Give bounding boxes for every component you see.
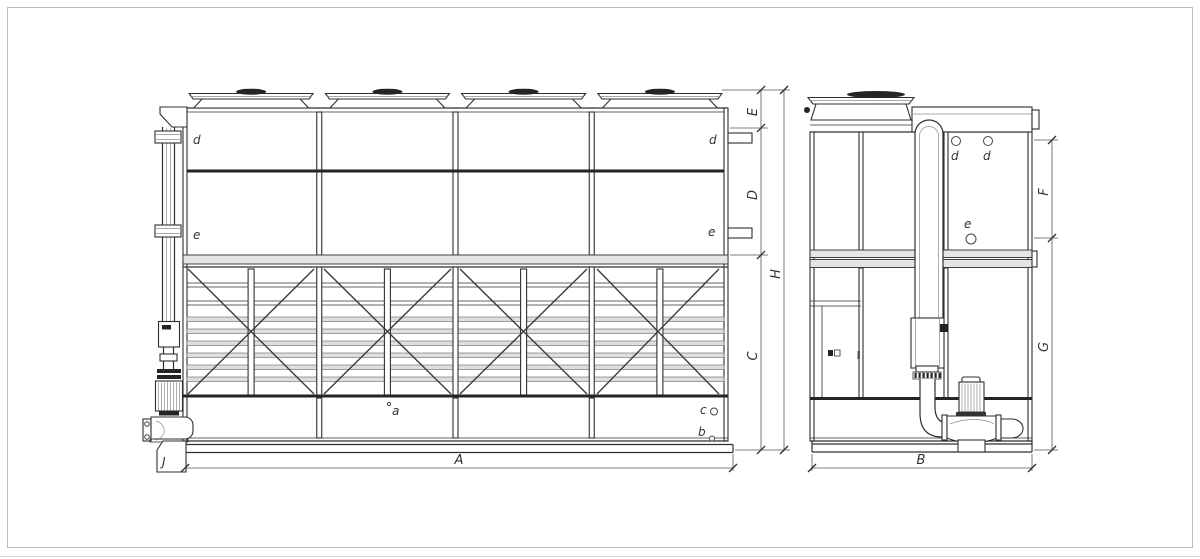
dimension-B: B — [808, 453, 1036, 472]
mid-band — [183, 255, 728, 264]
side-left-edge — [810, 132, 814, 441]
pipe-top-fitting — [160, 107, 187, 127]
front-fan-cowls — [189, 89, 722, 108]
access-door-latch — [828, 350, 860, 359]
technical-drawing: J d d e e a c b E — [0, 0, 1200, 559]
pump-volute — [947, 416, 997, 443]
dim-label-c-dim: C — [746, 351, 761, 361]
dim-label-f: F — [1037, 188, 1052, 196]
front-dimensions: E D C H A — [181, 86, 790, 472]
pump-pedestal — [958, 440, 985, 452]
pump-flange — [157, 375, 181, 379]
valve-assembly — [911, 318, 944, 368]
front-basin — [183, 398, 733, 453]
side-part-labels: d d e — [951, 137, 993, 245]
side-label-e: e — [964, 217, 971, 231]
dim-label-a-dim: A — [454, 453, 464, 468]
side-view: d d e F G — [804, 91, 1058, 472]
riser-pipe — [911, 120, 948, 437]
pump-flange — [996, 415, 1001, 440]
port-marker-d — [984, 137, 993, 146]
casing-right-edge — [724, 108, 728, 441]
part-label-b: b — [698, 425, 706, 439]
suction-end-cap — [1001, 419, 1023, 438]
port-marker-e — [966, 234, 976, 244]
side-fan-cowl — [804, 91, 914, 120]
panel-label-e-right: e — [708, 225, 715, 239]
fan-cowl — [189, 89, 313, 108]
dim-label-d-dim: D — [746, 190, 761, 200]
dimension-A: A — [181, 453, 737, 472]
panel-label-d-left: d — [193, 133, 201, 147]
fan-cowl — [598, 89, 722, 108]
dim-label-g: G — [1037, 342, 1052, 352]
port-marker-d — [952, 137, 961, 146]
pump-motor — [156, 381, 183, 411]
drawing-canvas: J d d e e a c b E — [0, 0, 1200, 559]
dimension-F: F — [1037, 136, 1056, 242]
side-right-edge — [1028, 132, 1032, 441]
pump-flange — [157, 369, 181, 373]
port-marker-a — [387, 402, 390, 405]
port-marker-b — [710, 436, 715, 441]
front-fill-lattice — [183, 267, 728, 398]
port-marker-c — [711, 408, 718, 415]
valve-actuator — [940, 324, 948, 332]
side-label-d1: d — [951, 149, 959, 163]
panel-label-e-left: e — [193, 228, 200, 242]
front-casing — [183, 108, 752, 441]
pump-flange — [942, 415, 947, 440]
side-label-d2: d — [983, 149, 991, 163]
dimension-G: G — [1037, 238, 1056, 454]
front-view: J d d e e a c b E — [143, 86, 790, 472]
dim-label-h: H — [769, 269, 784, 279]
dim-label-b-dim: B — [917, 453, 926, 468]
dimension-H: H — [769, 86, 788, 454]
pipe-bracket — [155, 131, 181, 143]
panel-row-separator — [187, 170, 724, 173]
pipe-bracket — [155, 225, 181, 237]
pipe-flange-hatch — [913, 372, 941, 379]
left-standpipe — [155, 107, 187, 347]
pump-volute — [151, 417, 193, 439]
casing-left-edge — [183, 108, 187, 441]
part-label-a: a — [392, 404, 399, 418]
panel-label-d-right: d — [709, 133, 717, 147]
fan-cowl — [325, 89, 449, 108]
fan-cowl — [462, 89, 586, 108]
part-label-c: c — [700, 403, 707, 417]
connection-stub-d — [728, 133, 752, 143]
connection-stub-e — [728, 228, 752, 238]
bolt-detail — [804, 107, 810, 113]
dim-label-e-dim: E — [746, 107, 761, 116]
